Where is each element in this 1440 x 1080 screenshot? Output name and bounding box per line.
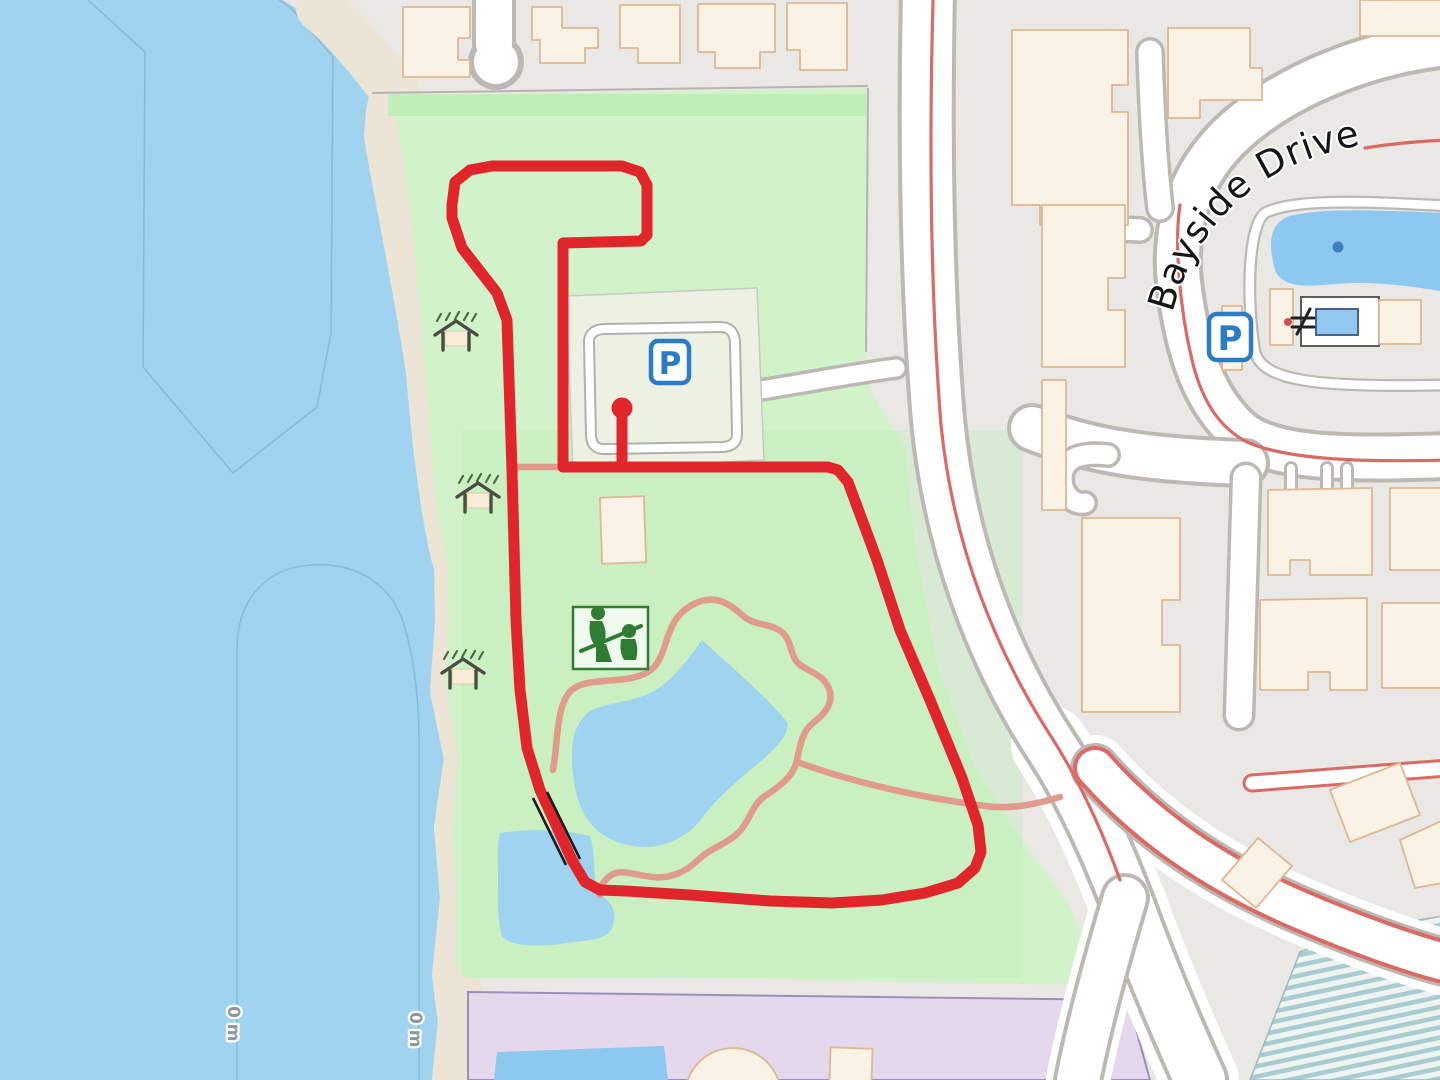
- svg-text:P: P: [1218, 319, 1243, 359]
- map-viewport[interactable]: P P Bayside Drive 0 m 0 m: [0, 0, 1440, 1080]
- fountain-icon: [1333, 242, 1344, 253]
- contour-label-2: 0 m: [405, 1012, 425, 1047]
- playground-icon: [573, 606, 648, 669]
- route-start-marker: [612, 398, 633, 419]
- parking-icon-bayside: P: [1209, 314, 1251, 360]
- park-building: [600, 496, 646, 563]
- map-canvas[interactable]: P P Bayside Drive 0 m 0 m: [0, 0, 1440, 1080]
- contour-label-1: 0 m: [223, 1006, 243, 1041]
- grass-strip: [388, 94, 866, 116]
- svg-text:P: P: [659, 346, 682, 382]
- parking-icon-park: P: [651, 341, 689, 383]
